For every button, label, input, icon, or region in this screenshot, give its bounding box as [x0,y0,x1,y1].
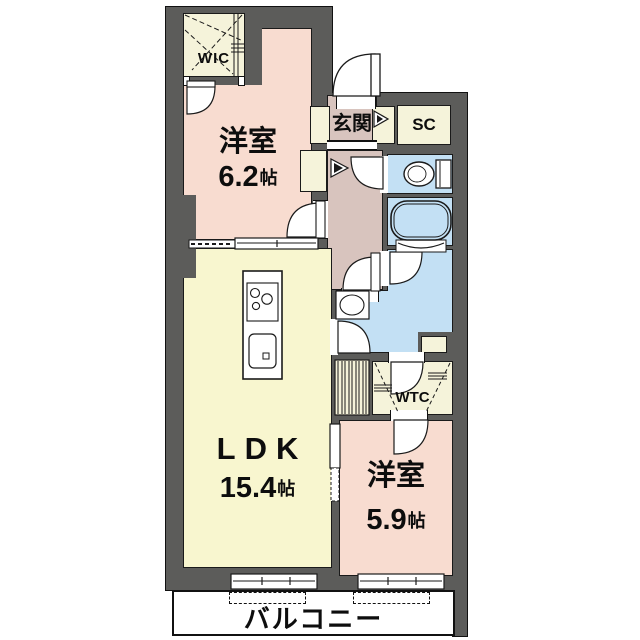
bedroom2-label: 洋室 [339,456,453,490]
left-wall-pilaster [183,195,196,278]
shoe-closet-label-text: SC [412,115,436,135]
bedroom1-size-value: 6.2 [218,161,258,194]
hall-ldk-opening [341,288,379,302]
floor-plan: WIC 洋室 6.2帖 玄関 SC LDK 15.4帖 WTC 洋室 5.9帖 … [0,0,640,640]
bedroom2-size-value: 5.9 [366,504,406,537]
ldk-size-unit: 帖 [277,475,295,501]
ldk-room [183,248,332,568]
wtc-opening-top [388,352,425,363]
entrance-door [333,54,380,96]
toilet-room [387,154,453,194]
hallway [327,150,383,290]
bedroom2-label-text: 洋室 [367,452,425,494]
bath-room [387,197,453,246]
balcony-label: バルコニー [172,601,455,633]
wic-label: WIC [183,48,245,68]
balcony-label-text: バルコニー [244,599,383,636]
washroom-door-opening-hall [380,251,389,286]
entrance-label: 玄関 [325,108,379,134]
washroom-door-opening-ldk [330,319,338,355]
bedroom1-door-opening [313,200,328,239]
washroom-upper [387,249,453,291]
ldk-label: LDK [185,430,330,468]
bedroom1-size-unit: 帖 [260,164,278,190]
wic-jamb-left [183,76,190,86]
bedroom-5-9 [339,420,453,576]
wall-right-lower [453,590,467,636]
shoe-closet-label: SC [397,113,451,137]
wic-jamb-right [238,76,245,86]
wic-label-text: WIC [198,50,230,67]
wtc-label: WTC [372,386,453,408]
washroom-corner-duct [421,336,447,353]
toilet-door-opening [380,156,388,193]
bedroom1-label: 洋室 [187,122,309,156]
bedroom1-size: 6.2帖 [187,160,309,194]
ldk-label-text: LDK [208,431,308,467]
entrance-label-text: 玄関 [332,107,372,136]
bedroom2-size: 5.9帖 [339,502,453,538]
ldk-size-value: 15.4 [220,472,276,505]
wtc-label-text: WTC [395,389,429,406]
bedroom1-label-text: 洋室 [219,118,277,160]
ldk-size: 15.4帖 [185,470,330,506]
bedroom2-size-unit: 帖 [408,507,426,533]
entrance-step [327,140,377,150]
wtc-opening-bottom [390,410,428,421]
